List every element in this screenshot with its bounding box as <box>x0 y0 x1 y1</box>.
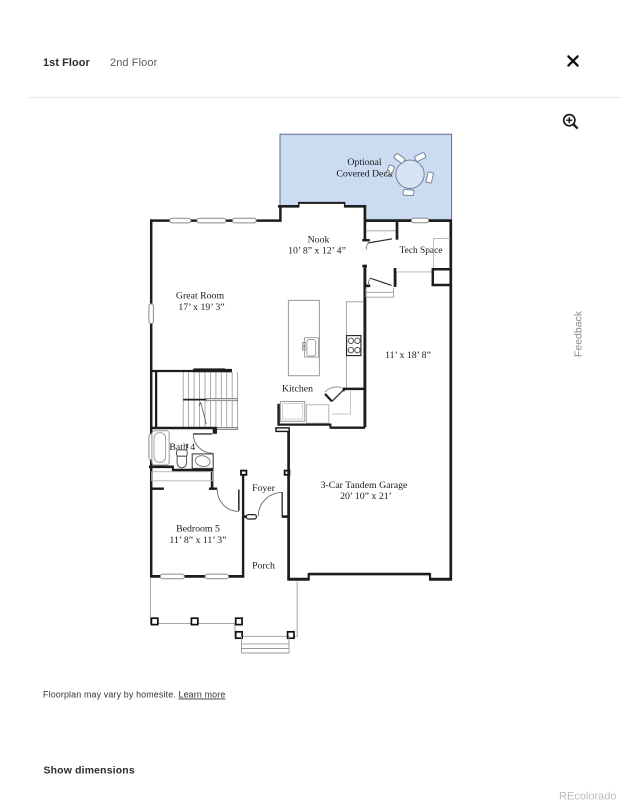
svg-text:Feedback: Feedback <box>573 310 585 357</box>
svg-text:11’ 8” x 11’ 3”: 11’ 8” x 11’ 3” <box>169 535 226 546</box>
svg-text:17’ x 19’ 3”: 17’ x 19’ 3” <box>178 302 224 313</box>
svg-text:2nd Floor: 2nd Floor <box>110 57 158 69</box>
svg-text:11’ x 18’ 8”: 11’ x 18’ 8” <box>385 350 431 361</box>
svg-text:Nook: Nook <box>308 235 330 246</box>
svg-text:Bedroom 5: Bedroom 5 <box>176 524 220 535</box>
svg-text:Porch: Porch <box>252 561 275 572</box>
svg-text:1st Floor: 1st Floor <box>43 57 91 69</box>
svg-text:Show dimensions: Show dimensions <box>44 766 135 777</box>
svg-text:Foyer: Foyer <box>252 483 276 494</box>
svg-text:Kitchen: Kitchen <box>282 384 313 395</box>
svg-text:REcolorado: REcolorado <box>559 791 616 803</box>
svg-text:10’ 8” x 12’ 4”: 10’ 8” x 12’ 4” <box>288 246 346 257</box>
svg-text:Tech Space: Tech Space <box>400 246 443 256</box>
svg-text:Great Room: Great Room <box>176 291 225 302</box>
svg-text:3-Car Tandem Garage: 3-Car Tandem Garage <box>321 480 408 491</box>
svg-text:Optional: Optional <box>347 157 382 168</box>
svg-text:20’ 10” x 21’: 20’ 10” x 21’ <box>340 491 392 502</box>
svg-text:Covered Deck: Covered Deck <box>336 169 392 180</box>
svg-text:Floorplan may vary by homesite: Floorplan may vary by homesite. Learn mo… <box>43 690 225 700</box>
